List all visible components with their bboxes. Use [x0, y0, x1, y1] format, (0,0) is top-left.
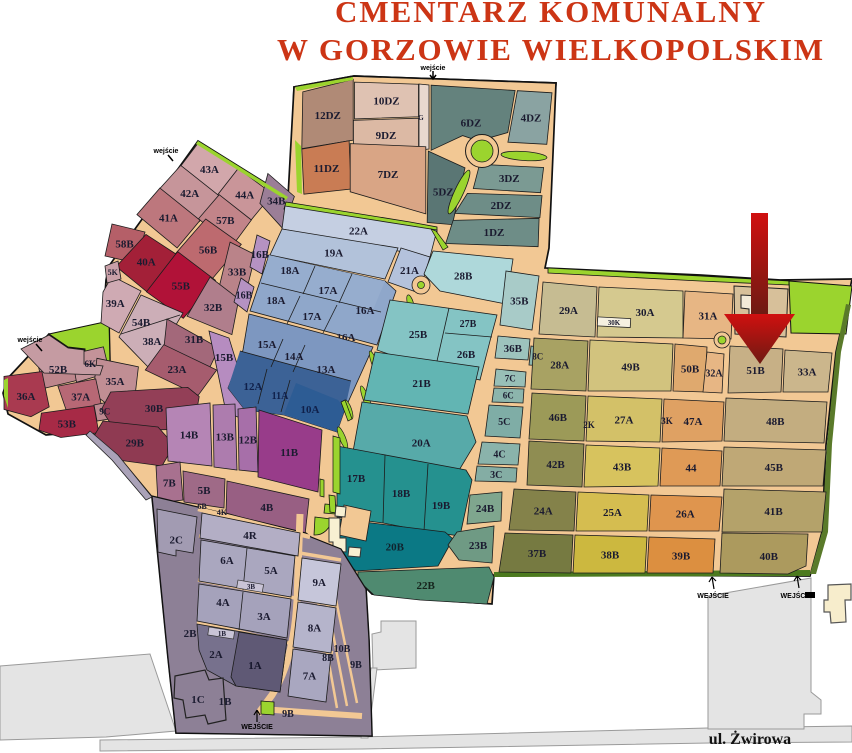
svg-text:42B: 42B — [546, 459, 565, 471]
svg-text:18A: 18A — [267, 295, 286, 307]
svg-text:38B: 38B — [601, 549, 620, 561]
svg-text:40A: 40A — [137, 257, 156, 269]
svg-text:24B: 24B — [476, 503, 495, 515]
svg-text:40B: 40B — [760, 551, 779, 563]
svg-text:2K: 2K — [583, 420, 595, 430]
svg-text:22A: 22A — [349, 225, 368, 237]
svg-text:10DZ: 10DZ — [373, 95, 399, 107]
svg-text:16A: 16A — [356, 305, 375, 317]
svg-text:55B: 55B — [172, 280, 191, 292]
svg-text:17B: 17B — [347, 473, 366, 485]
svg-text:7B: 7B — [163, 478, 177, 490]
svg-text:30B: 30B — [145, 403, 164, 415]
svg-text:37B: 37B — [528, 548, 547, 560]
svg-text:31B: 31B — [185, 334, 204, 346]
svg-text:4B: 4B — [260, 502, 274, 514]
svg-text:28B: 28B — [454, 271, 473, 283]
svg-text:6C: 6C — [503, 391, 514, 401]
svg-text:39A: 39A — [106, 298, 125, 310]
svg-text:43A: 43A — [200, 164, 219, 176]
svg-text:5K: 5K — [108, 268, 119, 277]
svg-text:6DZ: 6DZ — [461, 117, 482, 129]
svg-text:38A: 38A — [143, 336, 162, 348]
svg-text:46B: 46B — [549, 412, 568, 424]
svg-text:10B: 10B — [334, 644, 351, 655]
svg-text:13B: 13B — [216, 431, 235, 443]
svg-text:26A: 26A — [676, 508, 695, 520]
svg-text:10A: 10A — [301, 404, 320, 416]
svg-text:30A: 30A — [636, 307, 655, 319]
svg-text:1DZ: 1DZ — [484, 227, 505, 239]
svg-text:25A: 25A — [603, 507, 622, 519]
svg-text:9C: 9C — [99, 406, 110, 416]
svg-text:15A: 15A — [258, 339, 277, 351]
svg-text:35B: 35B — [510, 295, 529, 307]
svg-text:2DZ: 2DZ — [491, 200, 512, 212]
svg-text:14B: 14B — [180, 429, 199, 441]
svg-text:WEJŚCIE: WEJŚCIE — [241, 722, 273, 731]
svg-text:3K: 3K — [661, 416, 673, 426]
svg-text:3C: 3C — [490, 470, 502, 481]
svg-text:3DZ: 3DZ — [499, 173, 520, 185]
svg-text:19A: 19A — [324, 248, 343, 260]
svg-text:41B: 41B — [764, 506, 783, 518]
svg-text:WEJŚCIE: WEJŚCIE — [697, 591, 729, 600]
svg-text:18A: 18A — [281, 265, 300, 277]
svg-text:12DZ: 12DZ — [315, 110, 341, 122]
svg-text:6A: 6A — [220, 555, 234, 567]
svg-text:5B: 5B — [198, 485, 212, 497]
svg-text:25B: 25B — [409, 329, 428, 341]
svg-text:20A: 20A — [412, 437, 431, 449]
svg-text:CMENTARZ KOMUNALNY: CMENTARZ KOMUNALNY — [335, 0, 765, 29]
svg-text:56B: 56B — [199, 245, 218, 257]
svg-text:2C: 2C — [169, 534, 183, 546]
svg-text:4DZ: 4DZ — [521, 112, 542, 124]
svg-text:4C: 4C — [493, 449, 505, 460]
svg-text:7C: 7C — [505, 374, 516, 384]
svg-text:49B: 49B — [621, 361, 640, 373]
svg-text:44A: 44A — [235, 189, 254, 201]
svg-text:29A: 29A — [559, 305, 578, 317]
svg-text:2A: 2A — [209, 649, 223, 661]
svg-text:11DZ: 11DZ — [314, 163, 340, 175]
svg-text:53B: 53B — [58, 419, 77, 431]
svg-text:12A: 12A — [244, 381, 263, 393]
svg-text:33B: 33B — [228, 267, 247, 279]
svg-text:45B: 45B — [765, 462, 784, 474]
svg-text:5DZ: 5DZ — [433, 186, 454, 198]
svg-text:4A: 4A — [216, 597, 230, 609]
svg-text:7A: 7A — [303, 670, 317, 682]
svg-text:29B: 29B — [126, 437, 145, 449]
svg-text:23A: 23A — [168, 364, 187, 376]
svg-text:48B: 48B — [766, 416, 785, 428]
svg-text:32A: 32A — [705, 368, 723, 379]
svg-text:6B: 6B — [197, 502, 207, 511]
svg-text:8B: 8B — [322, 653, 334, 664]
svg-text:39B: 39B — [672, 550, 691, 562]
svg-text:18B: 18B — [392, 488, 411, 500]
svg-text:1B: 1B — [219, 696, 233, 708]
svg-text:51B: 51B — [746, 365, 765, 377]
svg-text:8A: 8A — [308, 622, 322, 634]
svg-text:1B: 1B — [218, 630, 227, 638]
svg-text:3A: 3A — [257, 611, 271, 623]
svg-text:4R: 4R — [243, 530, 258, 542]
svg-text:33A: 33A — [798, 367, 817, 379]
svg-text:26B: 26B — [457, 349, 476, 361]
svg-text:34B: 34B — [267, 195, 286, 207]
svg-text:21B: 21B — [412, 378, 431, 390]
svg-text:1C: 1C — [191, 694, 205, 706]
svg-text:9B: 9B — [350, 660, 362, 671]
svg-text:11B: 11B — [280, 447, 298, 459]
svg-text:12B: 12B — [239, 434, 258, 446]
svg-text:1A: 1A — [248, 660, 262, 672]
svg-text:G: G — [418, 114, 424, 122]
svg-text:23B: 23B — [469, 540, 488, 552]
svg-text:43B: 43B — [613, 461, 632, 473]
svg-text:47A: 47A — [684, 416, 703, 428]
svg-text:13A: 13A — [317, 364, 336, 376]
svg-text:16B: 16B — [251, 249, 270, 261]
svg-text:32B: 32B — [204, 302, 223, 314]
svg-text:6K: 6K — [84, 359, 96, 369]
svg-text:2B: 2B — [184, 628, 198, 640]
svg-text:27B: 27B — [460, 319, 477, 330]
svg-text:44: 44 — [686, 463, 698, 475]
svg-text:42A: 42A — [180, 188, 199, 200]
svg-text:41A: 41A — [159, 213, 178, 225]
svg-text:ul. Żwirowa: ul. Żwirowa — [709, 729, 791, 748]
svg-text:24A: 24A — [534, 505, 553, 517]
svg-text:5A: 5A — [264, 565, 278, 577]
svg-text:54B: 54B — [132, 317, 151, 329]
svg-text:4K: 4K — [217, 508, 228, 517]
svg-text:31A: 31A — [699, 310, 718, 322]
svg-text:9B: 9B — [282, 709, 294, 720]
svg-text:WEJŚC: WEJŚC — [781, 591, 806, 600]
svg-text:wejście: wejście — [153, 148, 179, 155]
svg-text:36A: 36A — [17, 391, 36, 403]
svg-text:50B: 50B — [681, 363, 700, 375]
svg-text:35A: 35A — [106, 376, 125, 388]
svg-text:9A: 9A — [313, 577, 327, 589]
svg-text:15B: 15B — [215, 352, 234, 364]
svg-text:30K: 30K — [608, 319, 621, 327]
svg-text:wejście: wejście — [17, 337, 43, 344]
svg-text:22B: 22B — [417, 580, 436, 592]
svg-text:58B: 58B — [115, 239, 134, 251]
svg-text:19B: 19B — [432, 500, 451, 512]
svg-text:W GORZOWIE WIELKOPOLSKIM: W GORZOWIE WIELKOPOLSKIM — [277, 32, 823, 67]
svg-text:17A: 17A — [303, 311, 322, 323]
svg-text:52B: 52B — [49, 364, 68, 376]
svg-text:20B: 20B — [386, 542, 405, 554]
svg-text:8C: 8C — [532, 351, 543, 361]
svg-text:28A: 28A — [550, 360, 569, 372]
svg-text:11A: 11A — [272, 391, 289, 402]
svg-text:16B: 16B — [236, 290, 253, 301]
svg-text:21A: 21A — [400, 265, 419, 277]
svg-text:3B: 3B — [247, 583, 256, 591]
svg-text:37A: 37A — [71, 391, 90, 403]
svg-text:5C: 5C — [498, 417, 510, 428]
svg-text:7DZ: 7DZ — [378, 169, 399, 181]
svg-text:27A: 27A — [615, 414, 634, 426]
svg-text:17A: 17A — [319, 285, 338, 297]
svg-text:36B: 36B — [504, 343, 523, 355]
svg-text:57B: 57B — [216, 215, 235, 227]
svg-text:14A: 14A — [285, 351, 304, 363]
svg-text:9DZ: 9DZ — [376, 130, 397, 142]
